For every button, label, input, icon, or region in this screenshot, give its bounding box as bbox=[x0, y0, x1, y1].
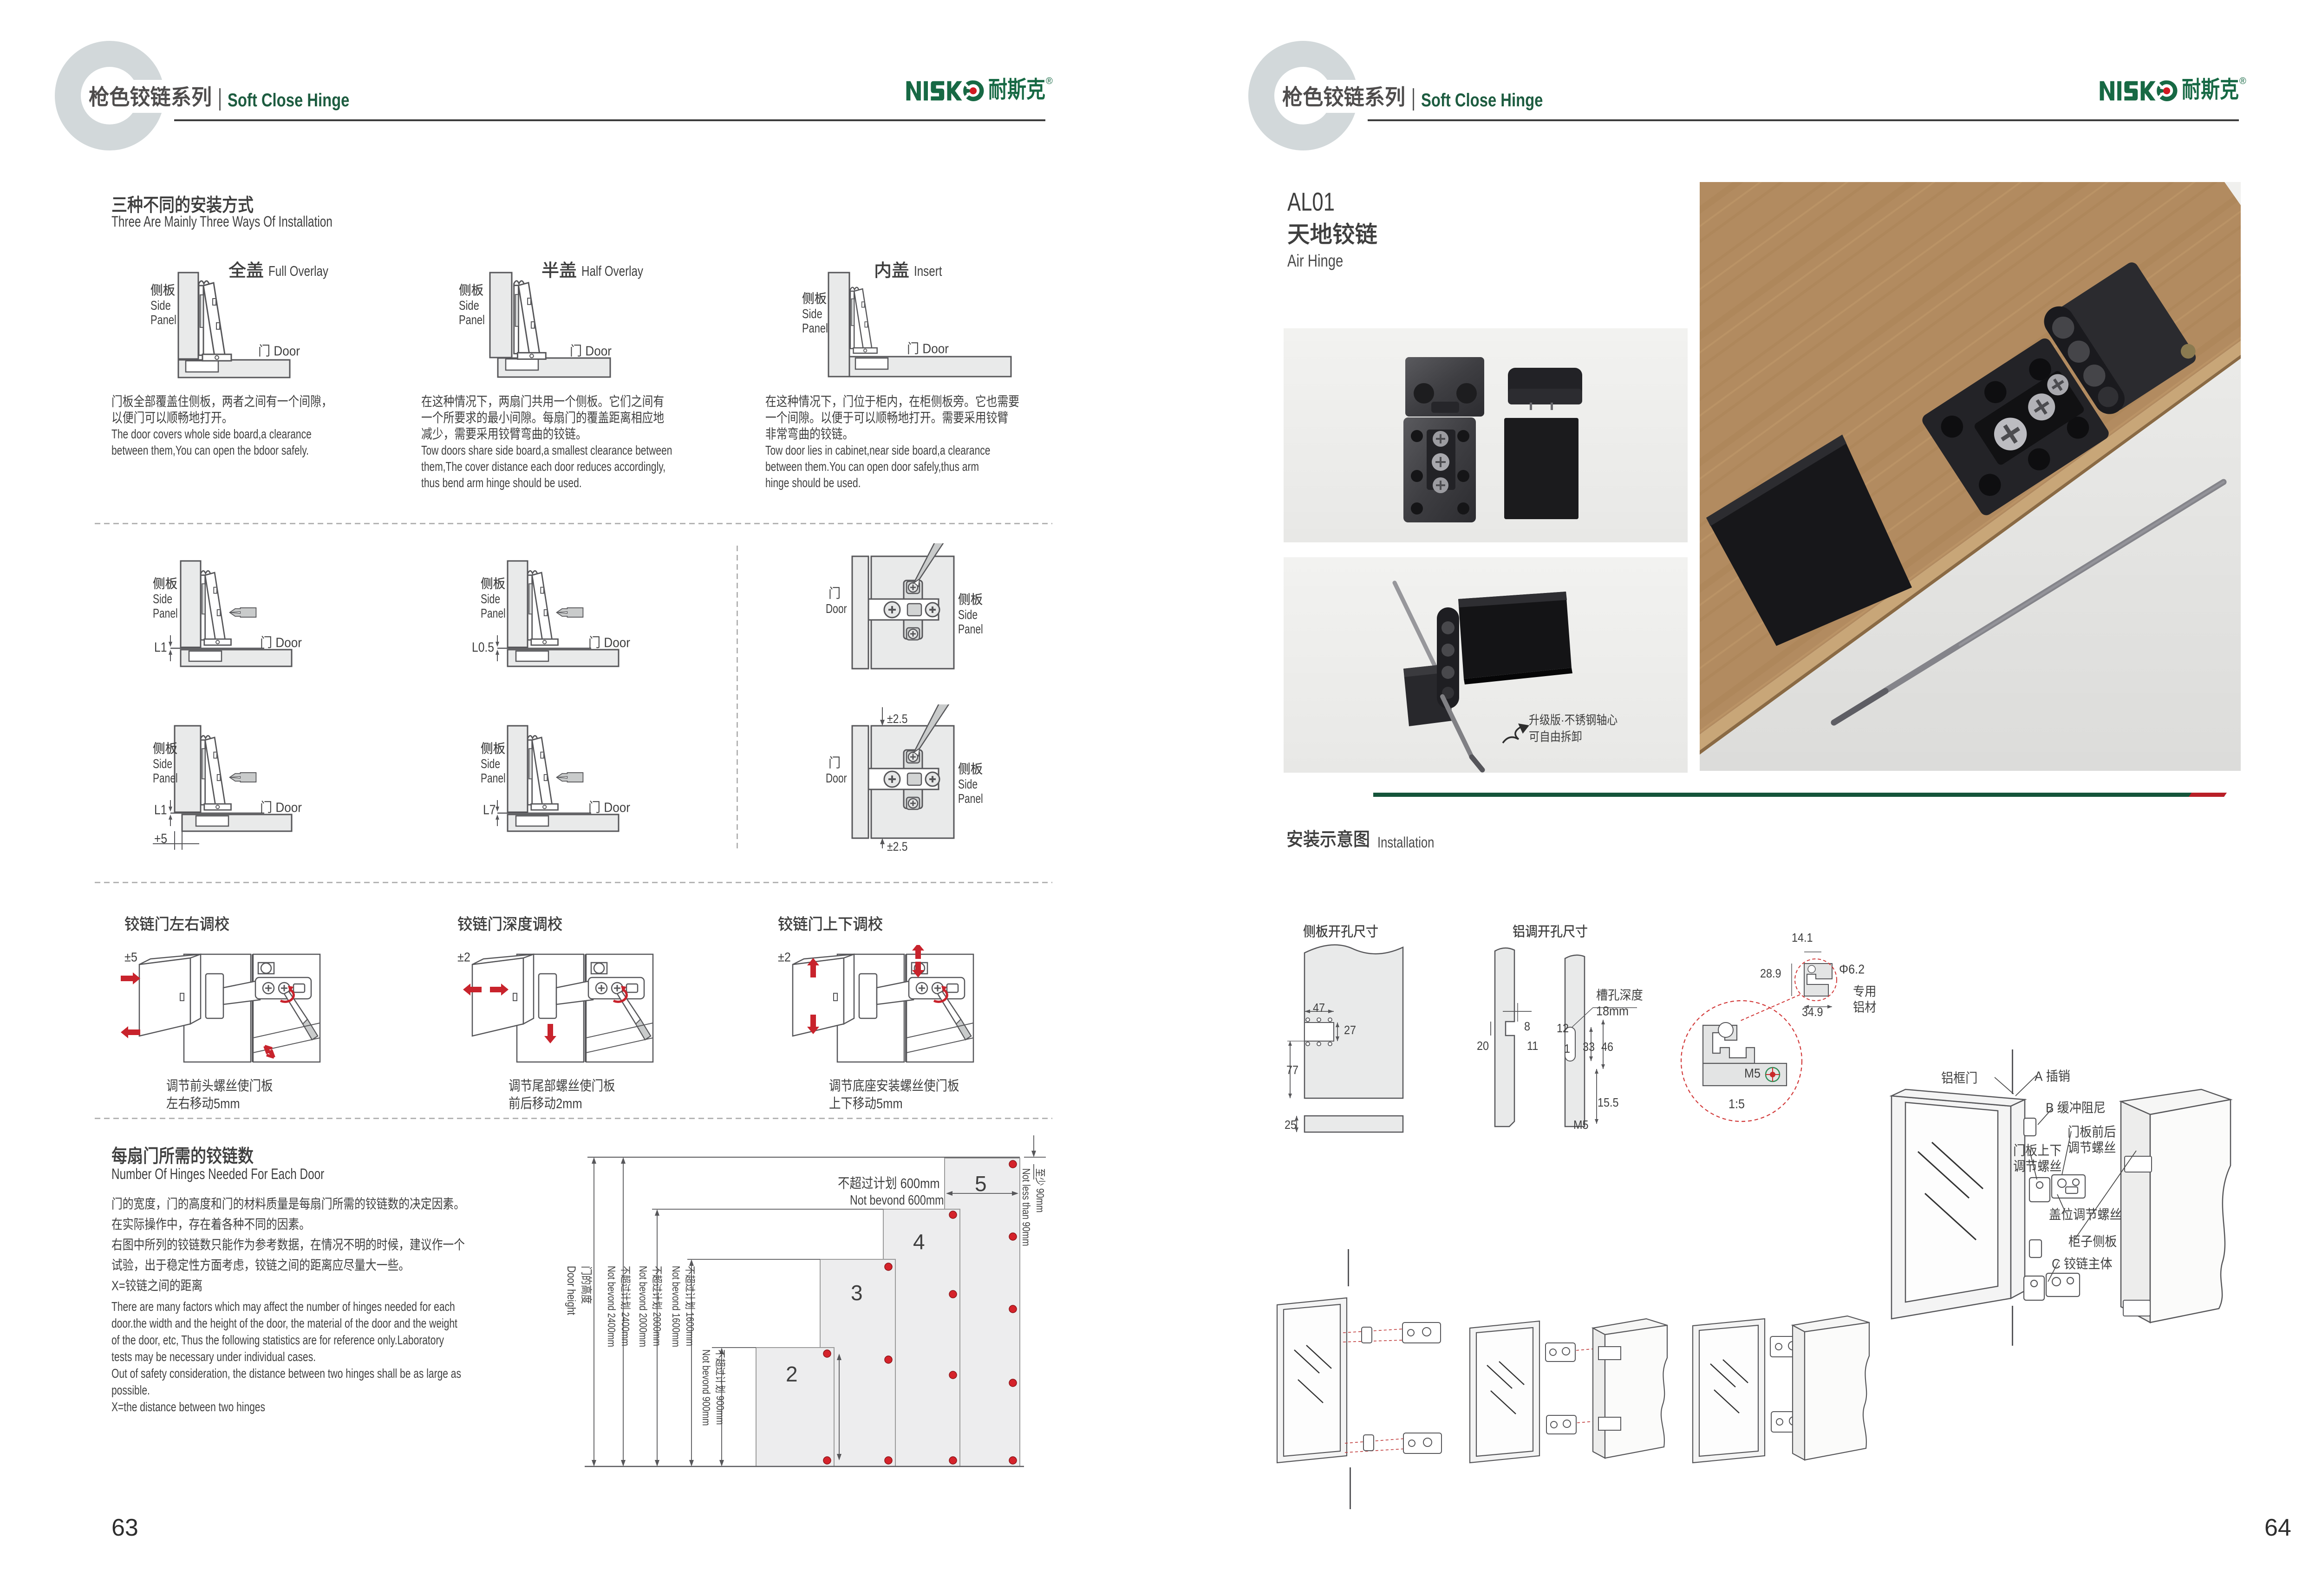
svg-text:33: 33 bbox=[1583, 1041, 1595, 1054]
svg-text:2: 2 bbox=[786, 1362, 798, 1386]
svg-text:±2.5: ±2.5 bbox=[887, 712, 907, 726]
svg-text:AL01: AL01 bbox=[1287, 188, 1335, 216]
svg-text:L7: L7 bbox=[483, 802, 496, 817]
svg-text:Door: Door bbox=[604, 800, 630, 815]
svg-text:28.9: 28.9 bbox=[1760, 967, 1781, 980]
svg-text:Door: Door bbox=[922, 341, 949, 356]
svg-text:600mm: 600mm bbox=[900, 1176, 940, 1191]
svg-text:Not bevond 2400mm: Not bevond 2400mm bbox=[605, 1266, 617, 1347]
svg-text:Door: Door bbox=[275, 635, 302, 650]
svg-text:5mm: 5mm bbox=[876, 1096, 903, 1111]
svg-text:±2: ±2 bbox=[457, 950, 470, 964]
svg-text:±2: ±2 bbox=[778, 950, 791, 964]
svg-text:Φ6.2: Φ6.2 bbox=[1839, 962, 1865, 977]
svg-text:L0.5: L0.5 bbox=[472, 640, 494, 655]
svg-text:Door: Door bbox=[604, 635, 630, 650]
svg-text:Door: Door bbox=[274, 344, 300, 358]
svg-text:11: 11 bbox=[1527, 1040, 1538, 1053]
svg-text:25: 25 bbox=[1285, 1119, 1297, 1132]
svg-text:L1: L1 bbox=[154, 640, 167, 655]
svg-text:·: · bbox=[1561, 713, 1565, 727]
svg-text:900mm: 900mm bbox=[714, 1396, 725, 1425]
svg-text:46: 46 bbox=[1601, 1041, 1613, 1054]
svg-text:±2.5: ±2.5 bbox=[887, 840, 907, 853]
svg-text:Not less than 90mm: Not less than 90mm bbox=[1020, 1168, 1031, 1246]
svg-text:3: 3 bbox=[851, 1281, 863, 1305]
svg-text:M5: M5 bbox=[1744, 1066, 1761, 1081]
svg-text:Not bevond 900mm: Not bevond 900mm bbox=[700, 1349, 711, 1426]
svg-text:15.5: 15.5 bbox=[1598, 1096, 1619, 1109]
svg-text:90mm: 90mm bbox=[1034, 1188, 1045, 1212]
svg-text:Door: Door bbox=[585, 344, 612, 358]
svg-text:5: 5 bbox=[975, 1172, 987, 1196]
svg-text:4: 4 bbox=[913, 1230, 925, 1254]
svg-text:Not bevond 2000mm: Not bevond 2000mm bbox=[637, 1266, 648, 1347]
svg-text:1600mm: 1600mm bbox=[684, 1312, 695, 1346]
svg-text:20: 20 bbox=[1477, 1040, 1489, 1053]
svg-text:2000mm: 2000mm bbox=[651, 1312, 662, 1346]
svg-text:18mm: 18mm bbox=[1596, 1004, 1629, 1018]
svg-text:1:5: 1:5 bbox=[1728, 1097, 1745, 1111]
svg-text:2400mm: 2400mm bbox=[619, 1312, 631, 1346]
svg-text:5mm: 5mm bbox=[214, 1096, 240, 1111]
svg-text:12: 12 bbox=[1557, 1022, 1569, 1035]
svg-text:2mm: 2mm bbox=[556, 1096, 582, 1111]
svg-text:1: 1 bbox=[1564, 1042, 1570, 1055]
svg-text:14.1: 14.1 bbox=[1792, 932, 1813, 945]
svg-text:Door: Door bbox=[275, 800, 302, 815]
svg-text:77: 77 bbox=[1286, 1064, 1298, 1077]
svg-text:47: 47 bbox=[1313, 1002, 1325, 1015]
svg-text:±5: ±5 bbox=[124, 950, 137, 964]
svg-text:X=: X= bbox=[111, 1278, 125, 1293]
svg-text:L1: L1 bbox=[154, 802, 167, 817]
svg-text:+5: +5 bbox=[154, 831, 167, 846]
svg-text:M5: M5 bbox=[1573, 1119, 1588, 1132]
svg-text:Door height: Door height bbox=[565, 1266, 578, 1316]
svg-text:8: 8 bbox=[1524, 1020, 1530, 1033]
svg-text:34.9: 34.9 bbox=[1802, 1006, 1823, 1019]
svg-text:27: 27 bbox=[1344, 1024, 1356, 1037]
svg-text:Not bevond 1600mm: Not bevond 1600mm bbox=[670, 1266, 681, 1347]
